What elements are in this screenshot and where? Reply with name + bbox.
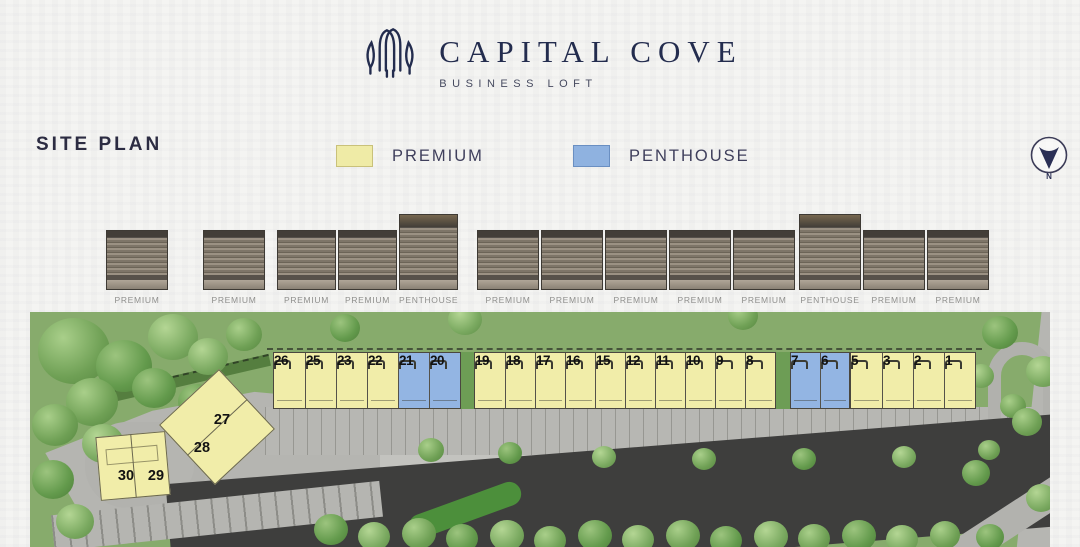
elevation-cell: PREMIUM: [203, 230, 265, 306]
tree-icon: [892, 446, 916, 468]
elevation-type-label: PREMIUM: [277, 295, 336, 306]
unit-number: 15: [596, 353, 610, 368]
elevation-type-label: PREMIUM: [541, 295, 603, 306]
tree-icon: [402, 518, 436, 547]
legend-item-premium: PREMIUM: [336, 145, 484, 167]
unit-11: 11: [655, 353, 685, 408]
unit-12: 12: [625, 353, 655, 408]
unit-10: 10: [685, 353, 715, 408]
unit-29-label: 29: [142, 468, 170, 484]
tree-icon: [56, 504, 94, 539]
tree-icon: [842, 520, 876, 547]
elevation-group: PREMIUMPREMIUMPENTHOUSE: [277, 214, 458, 306]
premium-building-elevation: [106, 230, 168, 290]
elevation-cell: PREMIUM: [277, 230, 336, 306]
unit-number: 7: [791, 353, 798, 368]
brand-text: CAPITAL COVE BUSINESS LOFT: [439, 22, 742, 90]
unit-number: 6: [821, 353, 828, 368]
unit-21: 21: [398, 353, 429, 408]
tree-icon: [692, 448, 716, 470]
tree-icon: [792, 448, 816, 470]
elevation-type-label: PREMIUM: [338, 295, 397, 306]
unit-2: 2: [913, 353, 944, 408]
unit-25: 25: [305, 353, 336, 408]
elevation-cell: PENTHOUSE: [799, 214, 861, 306]
premium-building-elevation: [277, 230, 336, 290]
tree-icon: [32, 404, 78, 446]
tree-icon: [1012, 408, 1042, 436]
penthouse-building-elevation: [799, 214, 861, 290]
elevation-type-label: PREMIUM: [863, 295, 925, 306]
elevation-type-label: PREMIUM: [106, 295, 168, 306]
svg-text:N: N: [1046, 172, 1052, 181]
penthouse-color-swatch: [573, 145, 610, 167]
tree-icon: [188, 338, 228, 375]
north-arrow-icon: N: [1026, 134, 1072, 184]
tree-icon: [358, 522, 390, 547]
building-elevations-row: PREMIUMPREMIUMPREMIUMPREMIUMPENTHOUSEPRE…: [0, 214, 1080, 306]
tree-icon: [418, 438, 444, 462]
unit-number: 1: [945, 353, 952, 368]
unit-7: 7: [791, 353, 820, 408]
tree-icon: [490, 520, 524, 547]
unit-number: 17: [536, 353, 550, 368]
unit-15: 15: [595, 353, 625, 408]
elevation-cell: PREMIUM: [477, 230, 539, 306]
unit-number: 9: [716, 353, 723, 368]
site-plan-canvas: 262523222120191817161512111098765321 27 …: [30, 312, 1050, 547]
elevation-cell: PREMIUM: [863, 230, 925, 306]
tree-icon: [962, 460, 990, 486]
premium-building-elevation: [863, 230, 925, 290]
tree-icon: [534, 526, 566, 547]
unit-26: 26: [274, 353, 305, 408]
tree-icon: [330, 314, 360, 342]
unit-6: 6: [820, 353, 849, 408]
elevation-cell: PREMIUM: [669, 230, 731, 306]
tree-icon: [1026, 484, 1050, 512]
tree-icon: [930, 521, 960, 547]
unit-segment: 262523222120: [273, 352, 461, 409]
elevation-type-label: PREMIUM: [669, 295, 731, 306]
unit-number: 8: [746, 353, 753, 368]
premium-building-elevation: [733, 230, 795, 290]
green-gap: [461, 352, 474, 409]
tree-icon: [710, 526, 742, 547]
tree-icon: [578, 520, 612, 547]
unit-3: 3: [882, 353, 913, 408]
brand-title: CAPITAL COVE: [439, 34, 742, 70]
elevation-type-label: PREMIUM: [605, 295, 667, 306]
unit-segment: 191817161512111098: [474, 352, 776, 409]
unit-number: 16: [566, 353, 580, 368]
tree-icon: [314, 514, 348, 545]
elevation-group: PENTHOUSEPREMIUMPREMIUM: [799, 214, 989, 306]
elevation-cell: PREMIUM: [927, 230, 989, 306]
tree-icon: [226, 318, 262, 351]
elevation-cell: PREMIUM: [338, 230, 397, 306]
elevation-type-label: PREMIUM: [927, 295, 989, 306]
tree-icon: [976, 524, 1004, 547]
site-plan-page: CAPITAL COVE BUSINESS LOFT SITE PLAN PRE…: [0, 0, 1080, 547]
premium-color-swatch: [336, 145, 373, 167]
unit-27-label: 27: [208, 412, 236, 428]
unit-number: 25: [306, 353, 320, 368]
elevation-cell: PREMIUM: [541, 230, 603, 306]
page-title: SITE PLAN: [36, 134, 162, 156]
unit-segment: 5321: [850, 352, 976, 409]
tree-icon: [622, 525, 654, 547]
unit-number: 3: [883, 353, 890, 368]
unit-number: 10: [686, 353, 700, 368]
tree-icon: [498, 442, 522, 464]
elevation-type-label: PREMIUM: [477, 295, 539, 306]
premium-building-elevation: [541, 230, 603, 290]
tree-icon: [978, 440, 1000, 460]
elevation-cell: PENTHOUSE: [399, 214, 458, 306]
unit-30-label: 30: [112, 468, 140, 484]
unit-18: 18: [505, 353, 535, 408]
unit-1: 1: [944, 353, 975, 408]
elevation-cell: PREMIUM: [605, 230, 667, 306]
unit-number: 26: [274, 353, 288, 368]
unit-23: 23: [336, 353, 367, 408]
premium-building-elevation: [669, 230, 731, 290]
unit-number: 22: [368, 353, 382, 368]
brand-tagline: BUSINESS LOFT: [439, 78, 742, 90]
elevation-type-label: PREMIUM: [733, 295, 795, 306]
unit-number: 12: [626, 353, 640, 368]
unit-19: 19: [475, 353, 505, 408]
unit-number: 2: [914, 353, 921, 368]
premium-building-elevation: [477, 230, 539, 290]
tree-icon: [592, 446, 616, 468]
unit-segment: 76: [790, 352, 850, 409]
unit-17: 17: [535, 353, 565, 408]
elevation-cell: PREMIUM: [106, 230, 168, 306]
brand-header: CAPITAL COVE BUSINESS LOFT: [0, 22, 1080, 90]
legend-label-penthouse: PENTHOUSE: [629, 147, 750, 166]
unit-16: 16: [565, 353, 595, 408]
elevation-group: PREMIUM: [203, 230, 265, 306]
elevation-type-label: PENTHOUSE: [399, 295, 458, 306]
legend-label-premium: PREMIUM: [392, 147, 484, 166]
tree-icon: [982, 316, 1018, 349]
unit-number: 23: [337, 353, 351, 368]
tree-icon: [666, 520, 700, 547]
unit-number: 11: [656, 353, 669, 368]
legend-item-penthouse: PENTHOUSE: [573, 145, 750, 167]
unit-20: 20: [429, 353, 460, 408]
unit-block-30-29: [95, 431, 170, 501]
premium-building-elevation: [927, 230, 989, 290]
tree-icon: [446, 524, 478, 547]
tree-icon: [798, 524, 830, 547]
elevation-type-label: PENTHOUSE: [799, 295, 861, 306]
elevation-group: PREMIUM: [106, 230, 168, 306]
unit-22: 22: [367, 353, 398, 408]
unit-8: 8: [745, 353, 775, 408]
tree-icon: [132, 368, 176, 408]
unit-row: 262523222120191817161512111098765321: [273, 352, 976, 409]
elevation-group: PREMIUMPREMIUMPREMIUMPREMIUMPREMIUM: [477, 230, 795, 306]
green-gap: [776, 352, 790, 409]
unit-number: 19: [475, 353, 489, 368]
tree-icon: [32, 460, 74, 499]
tree-icon: [754, 521, 788, 547]
unit-number: 21: [399, 353, 413, 368]
premium-building-elevation: [338, 230, 397, 290]
premium-building-elevation: [605, 230, 667, 290]
capital-cove-logo-icon: [357, 22, 423, 84]
unit-28-label: 28: [188, 440, 216, 456]
penthouse-building-elevation: [399, 214, 458, 290]
elevation-type-label: PREMIUM: [203, 295, 265, 306]
unit-9: 9: [715, 353, 745, 408]
tree-icon: [886, 525, 918, 547]
unit-number: 5: [851, 353, 858, 368]
unit-5: 5: [851, 353, 882, 408]
unit-number: 20: [430, 353, 444, 368]
unit-number: 18: [506, 353, 520, 368]
premium-building-elevation: [203, 230, 265, 290]
elevation-cell: PREMIUM: [733, 230, 795, 306]
tree-icon: [448, 312, 482, 335]
tree-icon: [728, 312, 758, 330]
